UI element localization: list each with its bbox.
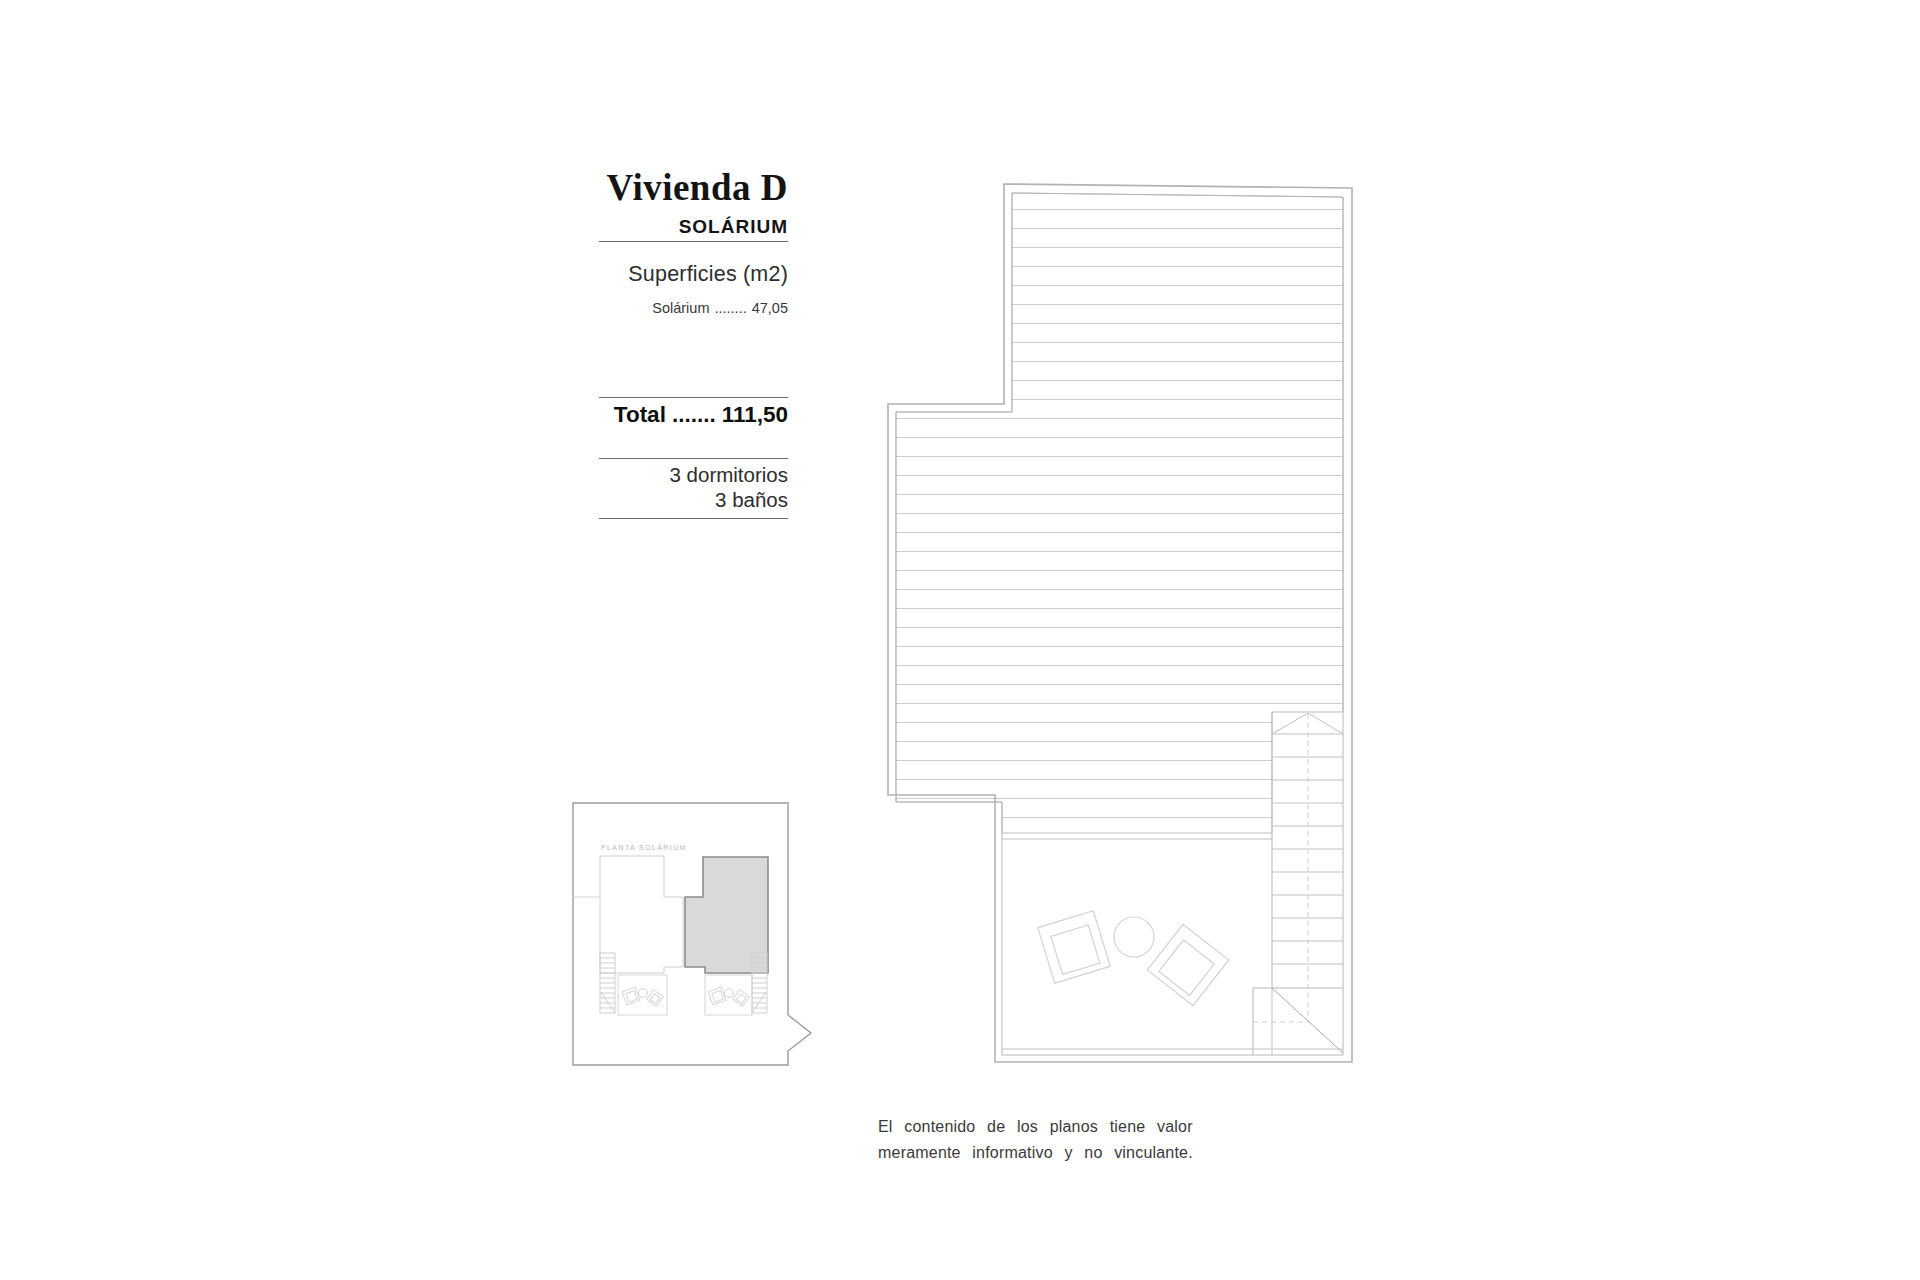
divider-below-features (599, 518, 788, 519)
disclaimer: El contenido de los planos tiene valor m… (878, 1114, 1193, 1165)
key-plan-left-furniture (622, 987, 663, 1006)
key-plan-highlighted-unit (685, 857, 768, 973)
brochure-page: Vivienda D SOLÁRIUM Superficies (m2) Sol… (0, 0, 1920, 1280)
round-table (1114, 917, 1154, 957)
total-value: 111,50 (722, 402, 788, 427)
divider-above-total (599, 397, 788, 398)
page-title: Vivienda D (607, 169, 788, 206)
surface-row-solarium: Solárium........47,05 (647, 301, 788, 316)
armchair-right (1147, 924, 1228, 1005)
feature-bedrooms: 3 dormitorios (670, 465, 789, 486)
armchair-left (1038, 911, 1110, 983)
surface-value: 47,05 (752, 300, 788, 316)
main-floor-plan (860, 170, 1380, 1080)
divider-under-subtitle (599, 241, 788, 242)
divider-above-features (599, 458, 788, 459)
key-plan-label: PLANTA SOLÁRIUM (601, 843, 687, 851)
plan-subtitle: SOLÁRIUM (679, 217, 788, 236)
total-leader-dots: ....... (672, 402, 716, 427)
total-row: Total.......111,50 (608, 404, 788, 427)
surface-label: Solárium (652, 300, 709, 316)
key-plan: PLANTA SOLÁRIUM (560, 790, 820, 1080)
terrace-furniture (1038, 911, 1229, 1006)
surface-leader-dots: ........ (714, 300, 746, 316)
total-label: Total (614, 402, 666, 427)
info-panel: Vivienda D SOLÁRIUM Superficies (m2) Sol… (600, 0, 788, 600)
solarium-deck (896, 193, 1343, 833)
disclaimer-line-1: El contenido de los planos tiene valor (878, 1114, 1193, 1140)
surfaces-heading: Superficies (m2) (628, 264, 788, 286)
key-plan-left-unit (600, 856, 683, 1015)
feature-bathrooms: 3 baños (715, 490, 788, 511)
key-plan-right-furniture (708, 987, 749, 1006)
disclaimer-line-2: meramente informativo y no vinculante. (878, 1140, 1193, 1166)
